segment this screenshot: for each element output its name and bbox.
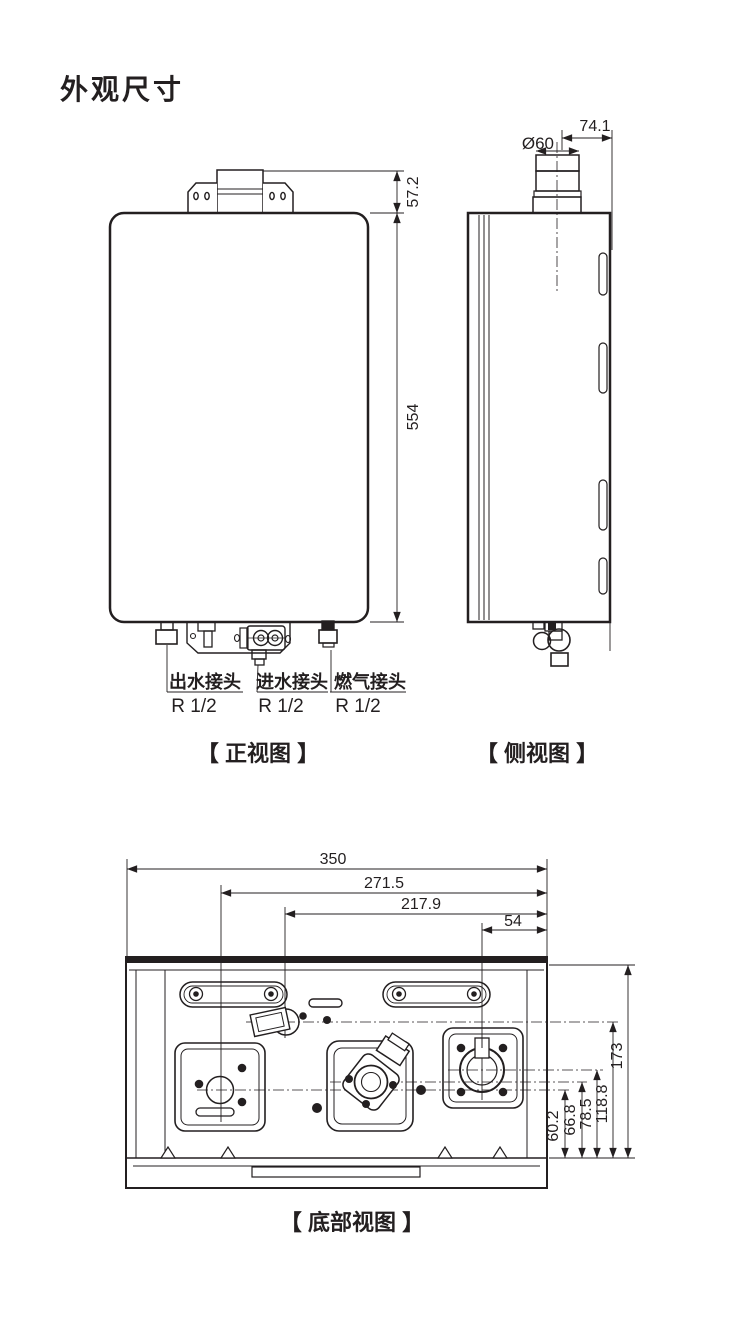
size-water-inlet: R 1/2 (258, 696, 303, 717)
dim-depth-118-8: 118.8 (594, 1084, 611, 1123)
size-gas: R 1/2 (335, 696, 380, 717)
dim-depth-173: 173 (609, 1043, 626, 1070)
dim-bracket-height: 57.2 (405, 176, 422, 207)
dim-depth-66-8: 66.8 (562, 1104, 579, 1135)
dim-width-350: 350 (320, 851, 347, 868)
label-water-outlet: 出水接头 (169, 671, 241, 692)
side-flue-pipe (536, 155, 579, 171)
dim-flue-offset: 74.1 (579, 118, 610, 135)
front-view-caption: 【 正视图 】 (197, 741, 319, 766)
left-connection-plate (175, 1043, 265, 1131)
water-outlet-fitting (156, 630, 177, 644)
front-left-bracket (188, 183, 217, 213)
dim-width-271-5: 271.5 (364, 875, 404, 892)
dim-width-217-9: 217.9 (401, 896, 441, 913)
page-title: 外观尺寸 (60, 74, 184, 105)
side-view (468, 130, 612, 666)
front-right-bracket (263, 183, 293, 213)
front-view (110, 170, 406, 692)
dim-width-54: 54 (504, 913, 522, 930)
dim-body-height: 554 (405, 404, 422, 431)
dimension-drawing-page: 外观尺寸 (0, 0, 750, 1340)
gas-fitting (319, 630, 337, 643)
label-water-inlet: 进水接头 (256, 671, 328, 692)
front-flue-collar (217, 170, 263, 213)
technical-drawing: 外观尺寸 (0, 0, 750, 1340)
side-view-caption: 【 侧视图 】 (476, 741, 598, 766)
bottom-body-outline (126, 957, 547, 1188)
water-inlet-pipe (252, 650, 266, 659)
dim-depth-60-2: 60.2 (545, 1110, 562, 1141)
label-gas: 燃气接头 (334, 671, 406, 692)
front-body-outline (110, 213, 368, 622)
dim-depth-78-5: 78.5 (578, 1098, 595, 1129)
bottom-view-caption: 【 底部视图 】 (280, 1210, 424, 1235)
dim-flue-diameter: Ø60 (522, 134, 554, 153)
size-water-outlet: R 1/2 (171, 696, 216, 717)
